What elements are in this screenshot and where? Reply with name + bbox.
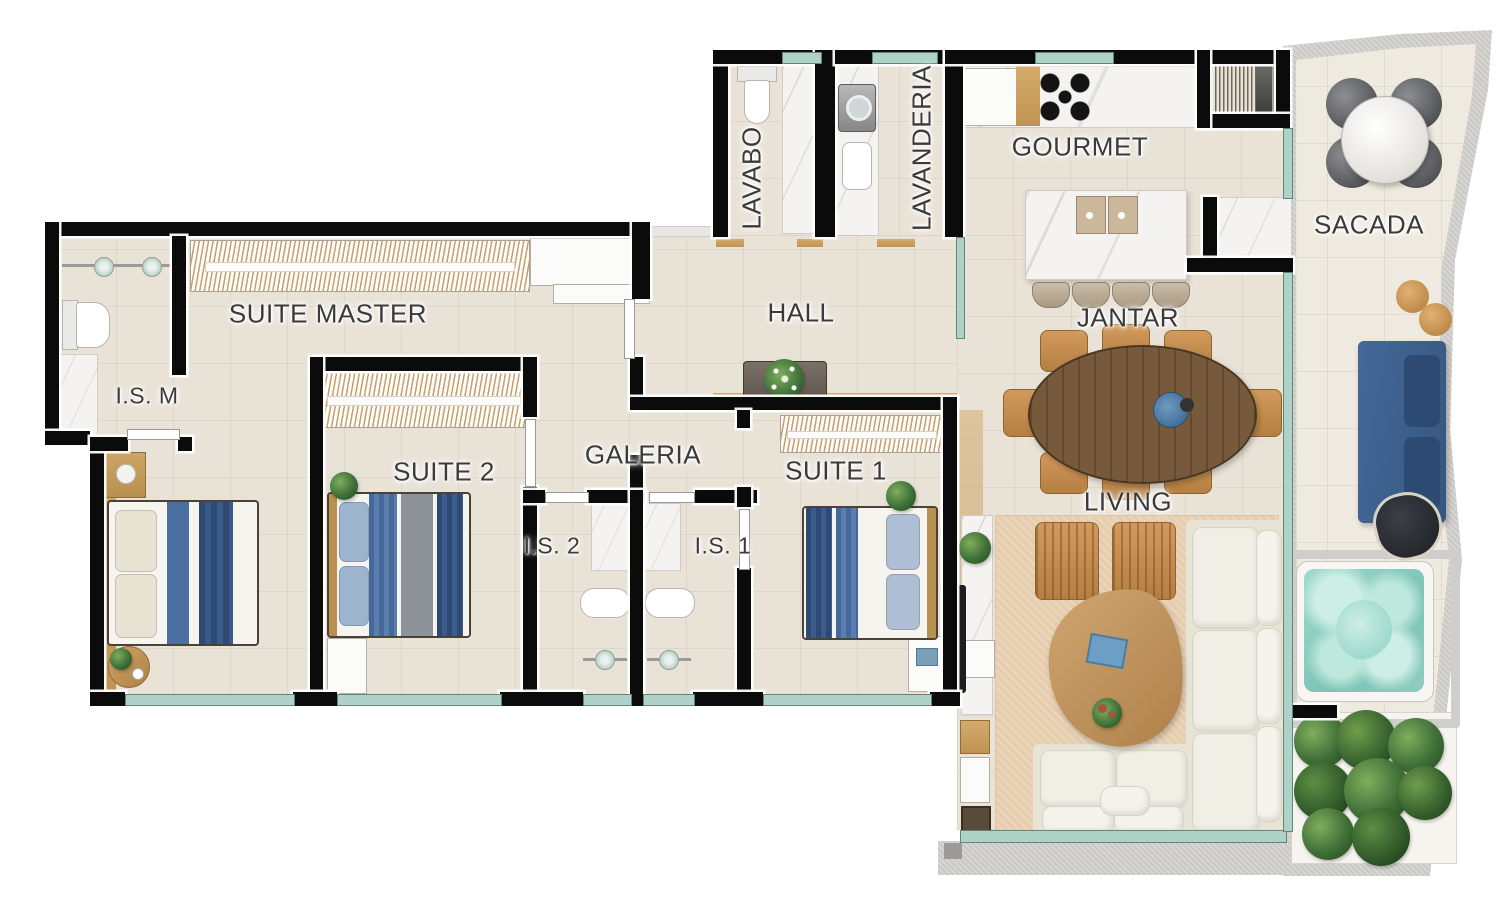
wall bbox=[630, 490, 643, 706]
wall bbox=[693, 692, 763, 706]
nightstand-suite-2 bbox=[327, 638, 367, 694]
planter-plant bbox=[1398, 766, 1452, 820]
tv-screen bbox=[958, 585, 966, 693]
door-leaf bbox=[525, 419, 536, 487]
bed-suite-1 bbox=[802, 506, 938, 640]
bed-drape bbox=[437, 492, 463, 638]
bar-shelf bbox=[960, 757, 990, 803]
wall bbox=[90, 445, 104, 706]
room-label-suite-2: SUITE 2 bbox=[393, 457, 495, 488]
wall bbox=[45, 222, 59, 445]
plant-suite-2 bbox=[330, 472, 358, 500]
cooktop bbox=[1038, 70, 1094, 122]
wall bbox=[1187, 258, 1293, 272]
wall bbox=[45, 222, 650, 236]
wardrobe-suite-1 bbox=[780, 415, 944, 453]
bed-suite-2 bbox=[327, 492, 471, 638]
wall bbox=[1289, 705, 1337, 718]
wall bbox=[737, 410, 750, 428]
floor-plan: SUITE MASTER I.S. M SUITE 2 GALERIA I.S.… bbox=[0, 0, 1500, 900]
door-leaf bbox=[649, 492, 695, 503]
wardrobe-suite-master bbox=[190, 240, 530, 292]
wall bbox=[630, 397, 957, 410]
toilet-bowl bbox=[744, 80, 770, 124]
bench-is-2 bbox=[580, 588, 630, 618]
living-armchair bbox=[1112, 522, 1176, 600]
console-plant bbox=[764, 359, 804, 399]
wall bbox=[523, 487, 537, 706]
wall bbox=[293, 692, 337, 706]
tray-decor bbox=[916, 648, 938, 666]
shower-head-icon bbox=[659, 650, 679, 670]
bed-gray-panel bbox=[401, 492, 433, 638]
sofa-cushion-blue bbox=[1404, 355, 1440, 427]
wall bbox=[310, 357, 323, 706]
shaft-panel bbox=[1256, 66, 1272, 114]
sofa-cushion bbox=[1192, 527, 1260, 629]
window-glass bbox=[960, 830, 1287, 843]
wall bbox=[523, 490, 545, 503]
sofa-cushion bbox=[1192, 630, 1260, 732]
vase bbox=[116, 464, 136, 484]
outdoor-round-table bbox=[1341, 96, 1429, 184]
wall bbox=[500, 692, 583, 706]
tablet-decor bbox=[1086, 633, 1129, 669]
bar-stool bbox=[1032, 282, 1070, 308]
bed-drape bbox=[806, 506, 832, 640]
pillow bbox=[339, 502, 369, 562]
sofa-pillow bbox=[1100, 786, 1150, 816]
door-threshold bbox=[797, 239, 823, 247]
window-glass bbox=[1283, 272, 1293, 832]
room-label-galeria: GALERIA bbox=[585, 440, 701, 471]
water-seat bbox=[1336, 600, 1392, 660]
decor-box bbox=[963, 640, 995, 678]
plant-pot bbox=[110, 648, 132, 670]
wall bbox=[737, 487, 751, 507]
wall bbox=[815, 50, 835, 237]
washer-door bbox=[846, 95, 872, 121]
vanity-is-2 bbox=[591, 503, 629, 571]
bed-runner bbox=[167, 500, 189, 646]
living-bottom-band bbox=[938, 841, 1300, 875]
door-threshold bbox=[877, 239, 915, 247]
window-glass bbox=[956, 237, 965, 339]
wall bbox=[943, 397, 957, 706]
room-label-jantar: JANTAR bbox=[1077, 303, 1179, 334]
bar-cart bbox=[960, 720, 990, 754]
room-label-lavanderia: LAVANDERIA bbox=[907, 65, 938, 231]
band-corner-block bbox=[944, 843, 962, 859]
wall bbox=[178, 437, 192, 451]
pillow bbox=[886, 514, 920, 570]
laundry-sink bbox=[842, 142, 872, 190]
wall bbox=[945, 50, 963, 237]
window-glass bbox=[782, 52, 822, 64]
entry-threshold bbox=[652, 226, 715, 237]
door-threshold bbox=[716, 239, 744, 247]
shower-head-icon bbox=[142, 257, 162, 277]
wall bbox=[45, 431, 90, 445]
sofa-back-cushion bbox=[1256, 628, 1282, 724]
wall bbox=[90, 692, 125, 706]
wardrobe-suite-2 bbox=[318, 372, 530, 428]
room-label-hall: HALL bbox=[767, 298, 834, 329]
wall bbox=[523, 357, 537, 417]
window-glass bbox=[763, 694, 932, 706]
outdoor-stool bbox=[1419, 303, 1452, 336]
door-leaf bbox=[545, 492, 589, 503]
window-glass bbox=[872, 52, 938, 64]
wall bbox=[1197, 50, 1210, 128]
room-label-is-2: I.S. 2 bbox=[524, 533, 581, 560]
plant-suite-1 bbox=[886, 481, 916, 511]
window-glass bbox=[125, 694, 295, 706]
wall bbox=[632, 222, 650, 299]
vanity-is-1 bbox=[643, 503, 681, 571]
pillow bbox=[886, 574, 920, 630]
room-label-living: LIVING bbox=[1084, 487, 1172, 518]
room-label-is-1: I.S. 1 bbox=[695, 533, 752, 560]
coffee-table-plant bbox=[1092, 698, 1122, 728]
centerpiece-dish bbox=[1180, 398, 1194, 412]
toilet-bowl bbox=[76, 302, 110, 348]
headboard bbox=[927, 508, 936, 638]
gourmet-side-counter bbox=[1217, 197, 1292, 260]
sofa-back-cushion bbox=[1256, 530, 1282, 626]
wall bbox=[172, 236, 186, 375]
bed-throw bbox=[199, 500, 233, 646]
door-leaf bbox=[624, 299, 635, 359]
bench-is-1 bbox=[645, 588, 695, 618]
planter-plant bbox=[1352, 808, 1410, 866]
bed-suite-master bbox=[107, 500, 259, 646]
kitchen-island bbox=[1025, 190, 1187, 280]
wall bbox=[310, 357, 537, 371]
pillow bbox=[115, 510, 157, 572]
sofa-cushion bbox=[1192, 733, 1260, 833]
window-glass bbox=[1035, 52, 1114, 64]
wall bbox=[713, 50, 728, 237]
lavabo-counter bbox=[782, 64, 817, 234]
wall bbox=[90, 437, 128, 451]
vanity-is-m bbox=[60, 354, 98, 440]
room-label-sacada: SACADA bbox=[1314, 210, 1424, 241]
room-label-gourmet: GOURMET bbox=[1012, 132, 1148, 163]
window-glass bbox=[583, 694, 632, 706]
room-label-lavabo: LAVABO bbox=[737, 126, 768, 229]
bed-drape bbox=[836, 506, 858, 640]
door-leaf bbox=[127, 429, 180, 440]
tv-wall-plant bbox=[959, 532, 991, 564]
pillow bbox=[115, 574, 157, 638]
wall bbox=[930, 692, 960, 706]
window-glass bbox=[337, 694, 502, 706]
room-label-suite-master: SUITE MASTER bbox=[229, 299, 427, 330]
planter-plant bbox=[1302, 808, 1354, 860]
bed-drape bbox=[369, 492, 397, 638]
room-label-is-m: I.S. M bbox=[115, 383, 178, 410]
art-frame bbox=[961, 806, 991, 832]
shower-head-icon bbox=[595, 650, 615, 670]
window-glass bbox=[643, 694, 695, 706]
sink-dot bbox=[1086, 212, 1093, 219]
shower-head-icon bbox=[94, 257, 114, 277]
headboard bbox=[329, 494, 337, 636]
room-label-suite-1: SUITE 1 bbox=[785, 456, 887, 487]
window-glass bbox=[1283, 128, 1293, 199]
sofa-back-cushion bbox=[1256, 726, 1282, 822]
wall bbox=[737, 568, 751, 706]
refrigerator bbox=[958, 68, 1018, 126]
wall bbox=[1197, 114, 1290, 128]
pillow bbox=[339, 566, 369, 626]
cup bbox=[132, 668, 144, 680]
dining-table bbox=[1028, 345, 1257, 484]
living-armchair bbox=[1035, 522, 1099, 600]
cabinet-wood bbox=[1016, 66, 1040, 126]
sink-dot bbox=[1118, 212, 1125, 219]
